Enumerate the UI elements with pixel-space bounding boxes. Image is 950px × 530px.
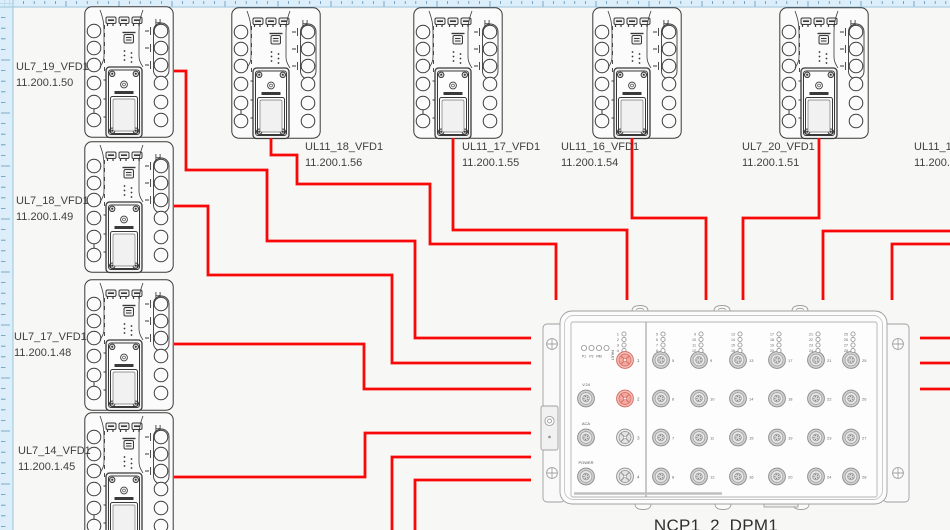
port-number: 19: [788, 435, 793, 440]
port-number: 2: [637, 396, 640, 401]
status-led-label: RM: [596, 355, 601, 359]
aux-port-label: ACA: [582, 421, 591, 426]
led-number: 6: [656, 338, 658, 342]
device-label-partial: UL11_14 11.200.1: [914, 140, 950, 171]
cable-offscreen-right-to-switch-b[interactable]: [892, 244, 950, 300]
port-number: 4: [637, 474, 640, 479]
port-number: 25: [862, 358, 867, 363]
device-name: UL7_17_VFD1: [14, 330, 87, 346]
mount-clamp: [541, 406, 558, 450]
led-number: 22: [809, 338, 813, 342]
led-number: 13: [731, 333, 735, 337]
m12-port[interactable]: [653, 352, 670, 369]
m12-port[interactable]: [808, 390, 825, 407]
device-ip: 11.200.1.50: [16, 76, 89, 92]
device-label: UL7_19_VFD1 11.200.1.50: [16, 60, 89, 91]
led-number: 9: [694, 333, 696, 337]
port-number: 14: [749, 396, 754, 401]
device-ip: 11.200.1.54: [561, 156, 639, 172]
port-number: 22: [827, 396, 832, 401]
cable-UL7_17_VFD1-to-switch[interactable]: [174, 344, 531, 389]
diagram-canvas: H: [0, 0, 950, 530]
device-ip: 11.200.1.56: [305, 156, 383, 172]
device-label: UL7_18_VFD1 11.200.1.49: [16, 194, 89, 225]
device-name: UL11_14: [914, 140, 950, 156]
m12-port[interactable]: [578, 390, 595, 407]
aux-port-label: V.24: [582, 382, 591, 387]
vfd-device-UL7_18_VFD1[interactable]: [85, 142, 173, 273]
port-number: 28: [862, 474, 867, 479]
m12-port-highlighted[interactable]: [617, 352, 634, 369]
device-ip: 11.200.1.48: [14, 346, 87, 362]
vfd-device-UL11_16_VFD1[interactable]: [593, 8, 681, 139]
network-switch[interactable]: P1P2RMFAULT1234V.24ACAPOWER1234556677889…: [541, 306, 909, 510]
m12-port[interactable]: [578, 468, 595, 485]
led-number: 25: [844, 333, 848, 337]
device-ip: 11.200.1.49: [16, 210, 89, 226]
status-led-label: P2: [589, 355, 593, 359]
led-number: 16: [731, 349, 735, 353]
cable-offscreen-bottom-to-switch-a[interactable]: [392, 457, 531, 530]
port-number: 18: [788, 396, 793, 401]
port-number: 10: [710, 396, 715, 401]
device-label: UL7_20_VFD1 11.200.1.51: [742, 140, 815, 171]
led-number: 11: [692, 344, 696, 348]
port-number: 23: [827, 435, 832, 440]
vfd-device-UL7_14_VFD1[interactable]: [85, 413, 173, 530]
port-number: 15: [749, 435, 754, 440]
vfd-device-UL11_18_VFD1[interactable]: [232, 8, 320, 139]
led-number: 28: [844, 349, 848, 353]
m12-port[interactable]: [653, 468, 670, 485]
port-number: 20: [788, 474, 793, 479]
m12-port[interactable]: [808, 468, 825, 485]
m12-port[interactable]: [769, 352, 786, 369]
led-number: 21: [809, 333, 813, 337]
device-name: UL7_19_VFD1: [16, 60, 89, 76]
port-number: 1: [637, 358, 640, 363]
port-number: 12: [710, 474, 715, 479]
led-number: 17: [770, 333, 774, 337]
m12-port[interactable]: [691, 390, 708, 407]
port-number: 16: [749, 474, 754, 479]
m12-port[interactable]: [769, 429, 786, 446]
m12-port[interactable]: [769, 390, 786, 407]
device-label: UL11_17_VFD1 11.200.1.55: [462, 140, 540, 171]
m12-port[interactable]: [691, 352, 708, 369]
led-number: 5: [656, 333, 658, 337]
m12-port[interactable]: [808, 429, 825, 446]
device-label: UL7_17_VFD1 11.200.1.48: [14, 330, 87, 361]
m12-port[interactable]: [578, 429, 595, 446]
vfd-device-UL7_20_VFD1[interactable]: [780, 8, 868, 139]
m12-port[interactable]: [843, 390, 860, 407]
port-number: 27: [862, 435, 867, 440]
led-number: 12: [692, 349, 696, 353]
cable-UL11_16_VFD1-to-switch[interactable]: [632, 138, 706, 300]
device-ip: 11.200.1.51: [742, 156, 815, 172]
led-number: 20: [770, 349, 774, 353]
m12-port[interactable]: [730, 352, 747, 369]
vfd-device-UL7_17_VFD1[interactable]: [85, 280, 173, 411]
port-number: 17: [788, 358, 793, 363]
device-name: UL7_18_VFD1: [16, 194, 89, 210]
m12-port[interactable]: [843, 352, 860, 369]
led-number: 7: [656, 344, 658, 348]
m12-port[interactable]: [730, 429, 747, 446]
device-ip: 11.200.1: [914, 156, 950, 172]
vfd-device-UL11_17_VFD1[interactable]: [414, 8, 502, 139]
m12-port[interactable]: [617, 429, 634, 446]
led-number: 14: [731, 338, 735, 342]
device-label: UL11_18_VFD1 11.200.1.56: [305, 140, 383, 171]
device-label: UL7_14_VFD1 11.200.1.45: [18, 444, 91, 475]
led-number: 27: [844, 344, 848, 348]
port-number: 13: [749, 358, 754, 363]
status-led-label: P1: [582, 355, 586, 359]
m12-port[interactable]: [769, 468, 786, 485]
switch-label: NCP1_2_DPM1: [640, 516, 792, 530]
cable-offscreen-bottom-to-switch-b[interactable]: [415, 480, 531, 530]
port-number: 3: [637, 435, 640, 440]
device-name: UL11_18_VFD1: [305, 140, 383, 156]
m12-port[interactable]: [843, 468, 860, 485]
led-number: 18: [770, 338, 774, 342]
m12-port[interactable]: [808, 352, 825, 369]
m12-port[interactable]: [691, 429, 708, 446]
m12-port[interactable]: [653, 429, 670, 446]
device-name: UL7_20_VFD1: [742, 140, 815, 156]
vfd-device-UL7_19_VFD1[interactable]: [85, 7, 173, 138]
network-diagram: H: [0, 0, 950, 530]
led-number: 8: [656, 349, 658, 353]
m12-port[interactable]: [653, 390, 670, 407]
cable-UL7_14_VFD1-to-switch[interactable]: [174, 433, 531, 477]
port-number: 21: [827, 358, 832, 363]
m12-port[interactable]: [730, 468, 747, 485]
led-number: 23: [809, 344, 813, 348]
m12-port[interactable]: [730, 390, 747, 407]
cable-offscreen-right-to-switch-a[interactable]: [823, 231, 950, 300]
led-number: 19: [770, 344, 774, 348]
m12-port[interactable]: [691, 468, 708, 485]
port-number: 24: [827, 474, 832, 479]
device-label: UL11_16_VFD1 11.200.1.54: [561, 140, 639, 171]
device-ip: 11.200.1.45: [18, 460, 91, 476]
device-name: UL11_17_VFD1: [462, 140, 540, 156]
led-number: 26: [844, 338, 848, 342]
led-number: 10: [692, 338, 696, 342]
status-led-label: FAULT: [611, 350, 615, 360]
led-number: 15: [731, 344, 735, 348]
m12-port[interactable]: [617, 468, 634, 485]
aux-port-label: POWER: [578, 460, 593, 465]
port-number: 26: [862, 396, 867, 401]
m12-port-highlighted[interactable]: [617, 390, 634, 407]
led-number: 24: [809, 349, 813, 353]
m12-port[interactable]: [843, 429, 860, 446]
device-ip: 11.200.1.55: [462, 156, 540, 172]
device-name: UL11_16_VFD1: [561, 140, 639, 156]
device-name: UL7_14_VFD1: [18, 444, 91, 460]
